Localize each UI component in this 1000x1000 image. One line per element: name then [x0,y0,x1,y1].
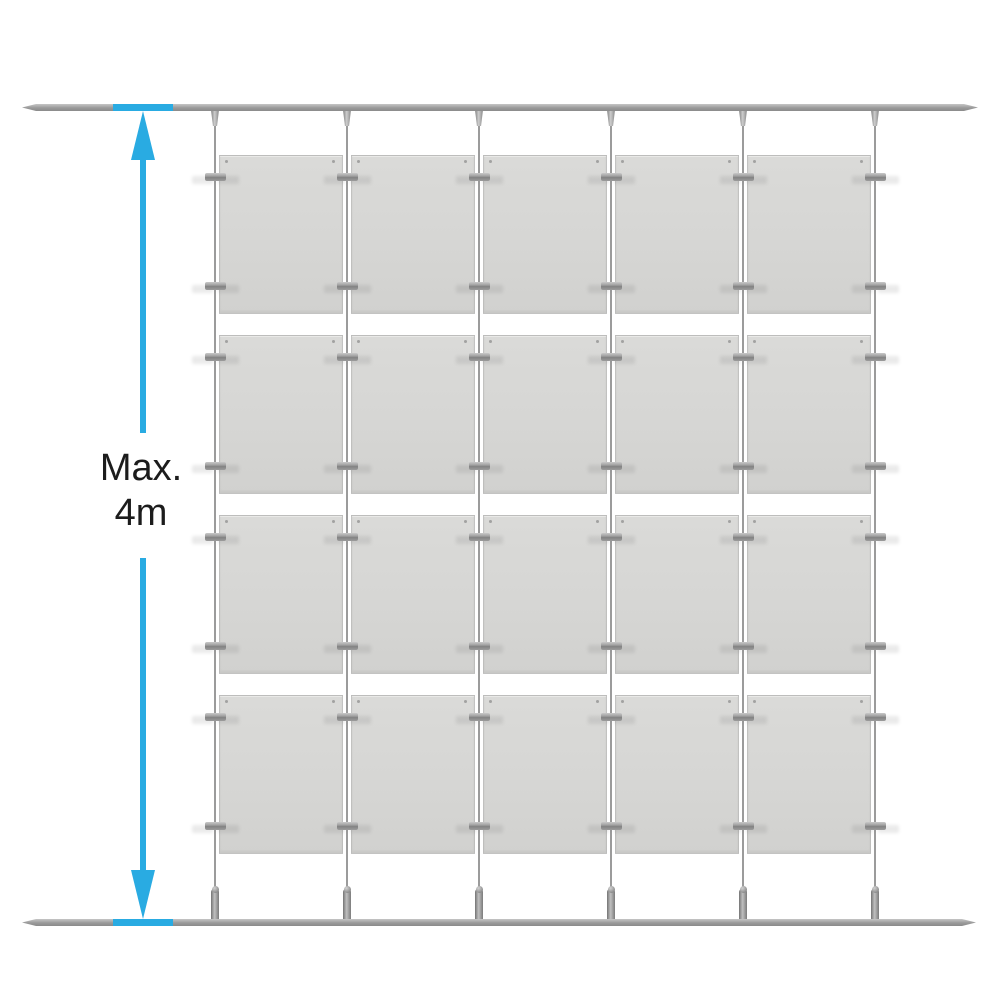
cable-gripper [865,822,886,830]
cable-gripper [865,713,886,721]
cable-gripper [601,462,622,470]
cable-top-fitting [343,110,351,126]
poster-panel [615,155,739,314]
dimension-label: Max. 4m [100,446,182,536]
cable-gripper [865,533,886,541]
cable-gripper [601,533,622,541]
cable-gripper [205,282,226,290]
cable-gripper [733,173,754,181]
cable-gripper [469,642,490,650]
poster-panel [219,515,343,674]
poster-panel [747,155,871,314]
cable-gripper [337,353,358,361]
suspension-cable [214,110,216,892]
cable-gripper [469,173,490,181]
cable-gripper [601,173,622,181]
cable-gripper [733,353,754,361]
cable-gripper [337,822,358,830]
cable-gripper [601,822,622,830]
cable-gripper [865,282,886,290]
suspension-cable [610,110,612,892]
cable-gripper [469,822,490,830]
suspension-cable [742,110,744,892]
poster-panel [483,515,607,674]
poster-panel [219,335,343,494]
cable-top-fitting [475,110,483,126]
poster-panel [351,515,475,674]
cable-bottom-tensioner [211,889,219,920]
cable-gripper [205,173,226,181]
cable-bottom-tensioner [475,889,483,920]
cable-gripper [733,642,754,650]
cable-gripper [469,533,490,541]
suspension-cable [478,110,480,892]
cable-gripper [865,462,886,470]
cable-gripper [601,713,622,721]
bottom-rail [22,919,976,926]
dimension-label-line2: 4m [100,491,182,536]
suspension-cable [874,110,876,892]
poster-panel [615,695,739,854]
poster-panel [747,695,871,854]
arrow-down-icon [131,870,155,919]
cable-gripper [205,353,226,361]
dimension-arrow-shaft-upper [140,158,146,433]
cable-gripper [337,173,358,181]
dimension-arrow-shaft-lower [140,558,146,872]
cable-top-fitting [211,110,219,126]
poster-panel [351,155,475,314]
poster-panel [483,335,607,494]
cable-gripper [733,462,754,470]
poster-panel [351,335,475,494]
cable-gripper [469,282,490,290]
cable-top-fitting [739,110,747,126]
cable-top-fitting [871,110,879,126]
poster-panel [219,155,343,314]
cable-gripper [205,533,226,541]
poster-panel [219,695,343,854]
cable-gripper [205,642,226,650]
cable-gripper [601,282,622,290]
cable-gripper [337,642,358,650]
cable-display-kit-illustration: Max. 4m [0,0,1000,1000]
cable-gripper [337,713,358,721]
cable-gripper [865,173,886,181]
poster-panel [615,515,739,674]
cable-gripper [337,462,358,470]
cable-gripper [205,822,226,830]
cable-gripper [469,462,490,470]
cable-gripper [601,642,622,650]
cable-gripper [733,713,754,721]
cable-bottom-tensioner [739,889,747,920]
cable-gripper [337,533,358,541]
dimension-label-line1: Max. [100,446,182,491]
cable-gripper [205,462,226,470]
cable-gripper [469,713,490,721]
poster-panel [747,335,871,494]
cable-bottom-tensioner [343,889,351,920]
poster-panel [483,155,607,314]
poster-panel [351,695,475,854]
cable-bottom-tensioner [871,889,879,920]
cable-gripper [733,282,754,290]
cable-gripper [469,353,490,361]
cable-gripper [601,353,622,361]
cable-gripper [865,642,886,650]
poster-panel [483,695,607,854]
cable-gripper [865,353,886,361]
cable-top-fitting [607,110,615,126]
suspension-cable [346,110,348,892]
cable-gripper [337,282,358,290]
cable-gripper [205,713,226,721]
cable-gripper [733,822,754,830]
cable-gripper [733,533,754,541]
poster-panel [747,515,871,674]
poster-panel [615,335,739,494]
cable-bottom-tensioner [607,889,615,920]
top-rail [22,104,978,111]
arrow-up-icon [131,111,155,160]
